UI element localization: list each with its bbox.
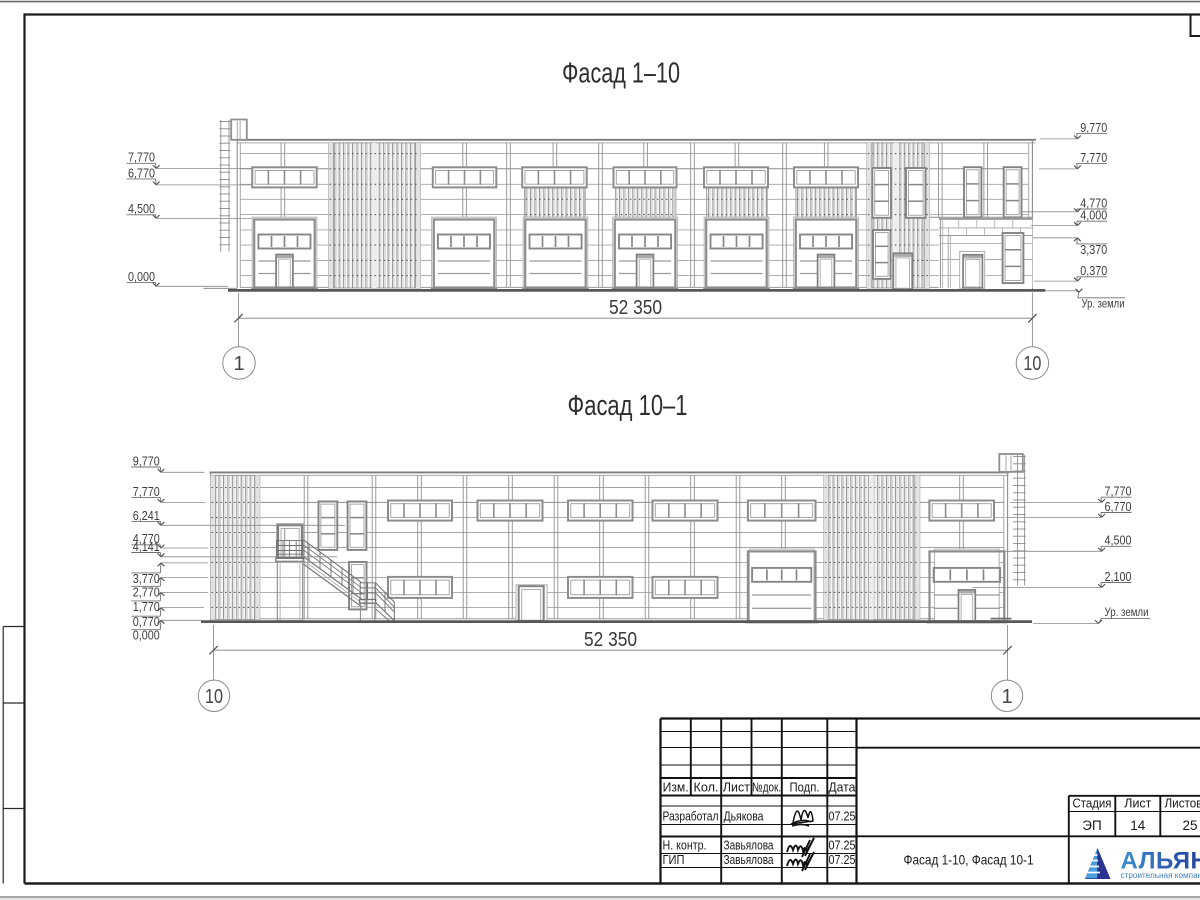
svg-text:10: 10 bbox=[205, 686, 223, 708]
svg-text:Дата: Дата bbox=[828, 780, 856, 795]
svg-text:Лист: Лист bbox=[723, 780, 750, 795]
svg-text:7,770: 7,770 bbox=[128, 150, 155, 165]
svg-text:7,770: 7,770 bbox=[1105, 484, 1132, 499]
svg-text:Стадия: Стадия bbox=[1073, 796, 1112, 811]
svg-text:Фасад 1-10, Фасад 10-1: Фасад 1-10, Фасад 10-1 bbox=[904, 852, 1034, 868]
svg-text:ГИП: ГИП bbox=[663, 853, 685, 867]
svg-text:Кол.: Кол. bbox=[694, 780, 719, 795]
svg-text:Фасад 1–10: Фасад 1–10 bbox=[562, 58, 680, 90]
svg-text:07.25: 07.25 bbox=[829, 810, 856, 824]
svg-text:Подп.: Подп. bbox=[790, 780, 820, 795]
svg-text:9,770: 9,770 bbox=[133, 453, 160, 468]
svg-text:4,000: 4,000 bbox=[1080, 208, 1107, 223]
svg-text:4,141: 4,141 bbox=[133, 539, 160, 554]
svg-text:Завьялова: Завьялова bbox=[724, 853, 774, 867]
svg-text:Дьякова: Дьякова bbox=[724, 810, 764, 824]
svg-text:07.25: 07.25 bbox=[829, 839, 856, 853]
svg-text:4,500: 4,500 bbox=[1105, 533, 1132, 548]
svg-text:07.25: 07.25 bbox=[829, 853, 856, 867]
svg-text:строительная компания: строительная компания bbox=[1121, 871, 1200, 880]
svg-text:52 350: 52 350 bbox=[609, 296, 662, 319]
svg-text:52 350: 52 350 bbox=[584, 628, 637, 651]
svg-text:7,770: 7,770 bbox=[133, 484, 160, 499]
svg-text:1: 1 bbox=[1001, 686, 1012, 708]
svg-text:ЭП: ЭП bbox=[1082, 818, 1101, 833]
svg-text:6,241: 6,241 bbox=[133, 508, 160, 523]
svg-text:№док.: №док. bbox=[752, 780, 781, 795]
svg-text:6,770: 6,770 bbox=[1105, 499, 1132, 514]
svg-text:1: 1 bbox=[233, 353, 244, 375]
svg-text:Разработал: Разработал bbox=[663, 810, 719, 824]
svg-text:Ур. земли: Ур. земли bbox=[1082, 298, 1125, 310]
svg-text:2,100: 2,100 bbox=[1105, 569, 1132, 584]
svg-text:25: 25 bbox=[1182, 818, 1197, 833]
svg-text:10: 10 bbox=[1023, 353, 1041, 375]
svg-text:6,770: 6,770 bbox=[128, 165, 155, 180]
svg-text:0,370: 0,370 bbox=[1080, 263, 1107, 278]
svg-text:14: 14 bbox=[1130, 818, 1146, 833]
svg-text:Фасад 10–1: Фасад 10–1 bbox=[568, 390, 688, 422]
svg-text:Листов: Листов bbox=[1165, 796, 1200, 811]
svg-text:Завьялова: Завьялова bbox=[724, 839, 774, 853]
svg-text:4,500: 4,500 bbox=[128, 201, 155, 216]
svg-text:0,000: 0,000 bbox=[128, 269, 155, 284]
svg-text:Лист: Лист bbox=[1124, 796, 1151, 811]
svg-text:Изм.: Изм. bbox=[663, 780, 689, 795]
svg-text:7,770: 7,770 bbox=[1080, 150, 1107, 165]
svg-text:Н. контр.: Н. контр. bbox=[663, 839, 707, 853]
svg-text:Ур. земли: Ур. земли bbox=[1105, 607, 1149, 619]
svg-text:9,770: 9,770 bbox=[1080, 120, 1107, 135]
